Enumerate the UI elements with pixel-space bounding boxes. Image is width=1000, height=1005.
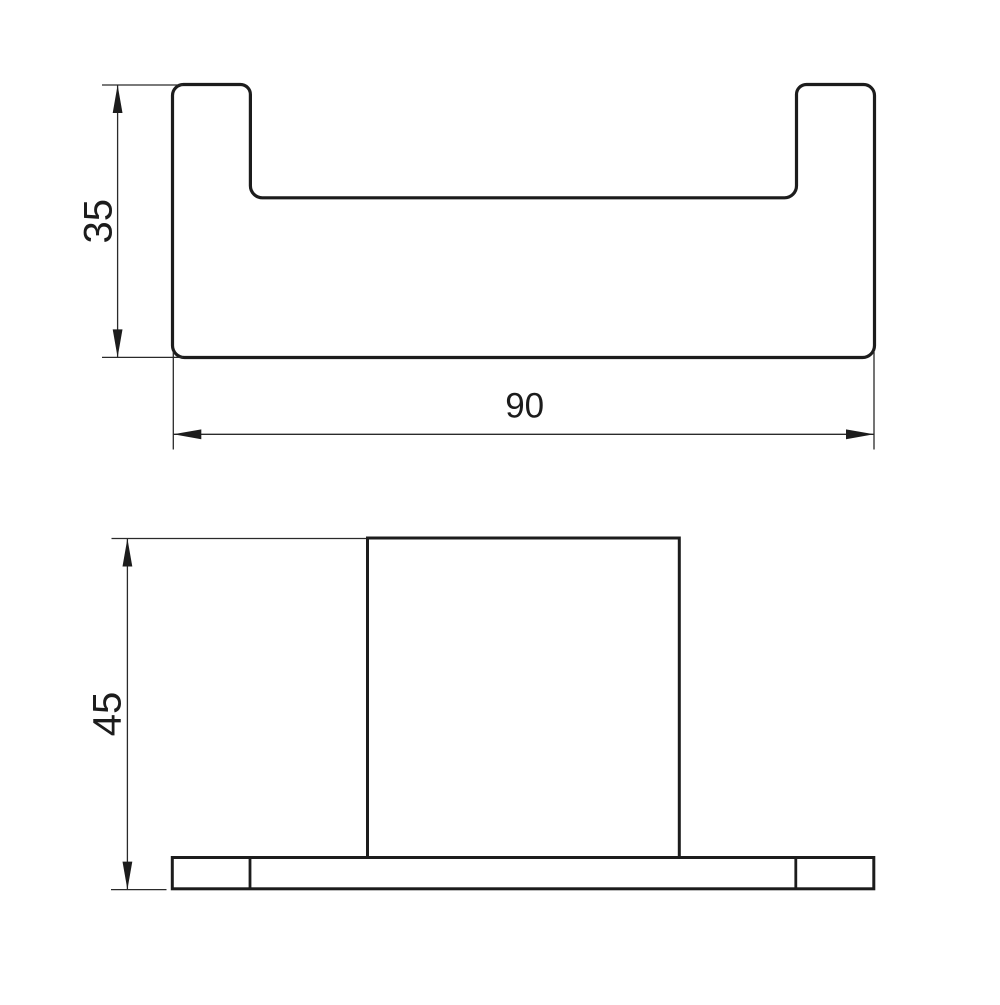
svg-text:90: 90 xyxy=(505,387,544,426)
svg-text:35: 35 xyxy=(77,199,121,244)
svg-text:45: 45 xyxy=(85,692,129,737)
